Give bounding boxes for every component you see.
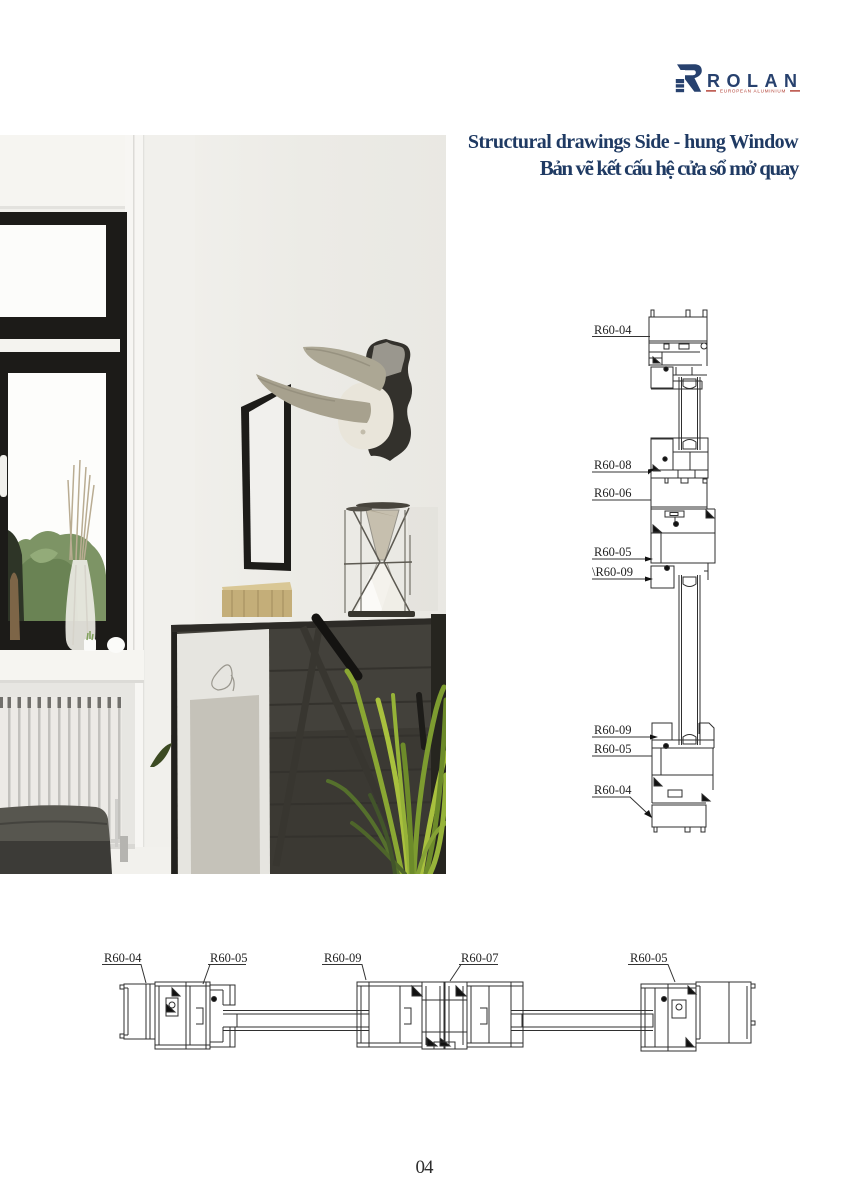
svg-text:R60-09: R60-09: [594, 723, 632, 737]
svg-text:R60-04: R60-04: [104, 951, 142, 965]
svg-text:R60-06: R60-06: [594, 486, 632, 500]
svg-text:\R60-09: \R60-09: [592, 565, 633, 579]
svg-text:R60-07: R60-07: [461, 951, 499, 965]
svg-text:R60-04: R60-04: [594, 323, 632, 337]
svg-text:R60-09: R60-09: [324, 951, 362, 965]
svg-text:R60-05: R60-05: [630, 951, 668, 965]
svg-text:EUROPEAN ALUMINIUM: EUROPEAN ALUMINIUM: [720, 89, 786, 94]
svg-text:R60-05: R60-05: [594, 742, 632, 756]
svg-text:R60-04: R60-04: [594, 783, 632, 797]
svg-text:R60-05: R60-05: [210, 951, 248, 965]
svg-text:R60-05: R60-05: [594, 545, 632, 559]
svg-text:R60-08: R60-08: [594, 458, 632, 472]
